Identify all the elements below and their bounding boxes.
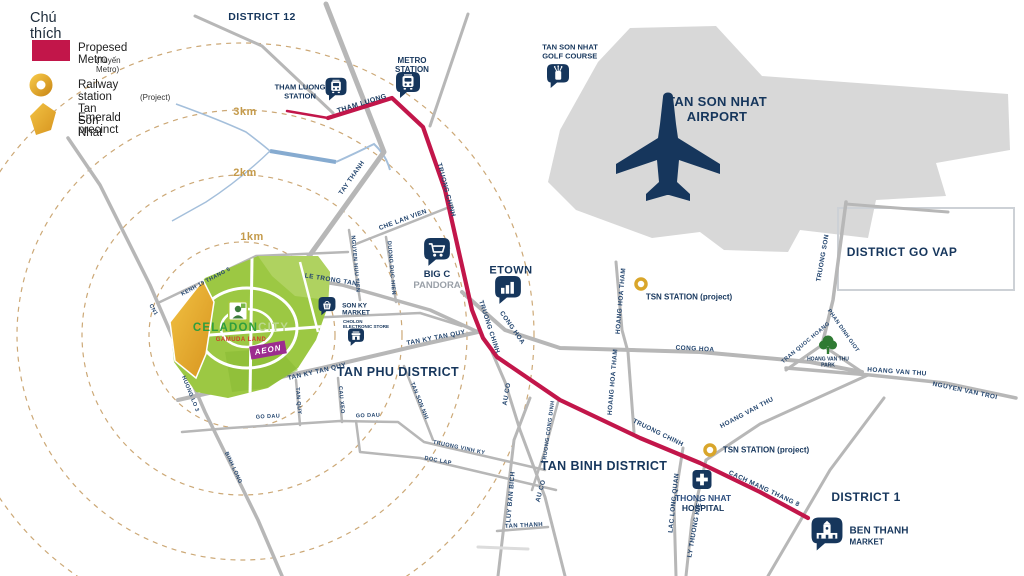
tsn-station-1-label: TSN STATION (project) [646, 292, 732, 301]
project-location-map: Chú thích Propesed Metro (Tuyến Metro) R… [0, 0, 1024, 576]
legend-title: Chú thích [30, 10, 61, 42]
etown-icon [495, 276, 521, 310]
hospital-icon [693, 470, 712, 494]
tsn-station-2-label: TSN STATION (project) [723, 445, 809, 454]
hvt-park-label: HOANG VAN THU PARK [807, 357, 849, 369]
celadon-city-label: CELADONCITY [193, 322, 289, 334]
son-ky-market-icon [319, 297, 336, 321]
tsn-station-1-marker [636, 279, 646, 289]
road-label-go-dau-1: GO DAU [256, 413, 281, 420]
tham-luong-station-label: THAM LUONG STATION [275, 83, 326, 100]
emerald-precinct-icon [30, 103, 58, 141]
metro-station-icon [396, 72, 420, 104]
airport-area [548, 26, 1010, 252]
ring-1km-label: 1km [240, 231, 264, 243]
district-12-label: DISTRICT 12 [228, 11, 295, 23]
cholon-store-icon [348, 329, 364, 352]
ring-3km-label: 3km [233, 106, 257, 118]
hospital-label: THONG NHAT HOSPITAL [675, 494, 731, 514]
tham-luong-station-icon [326, 78, 347, 107]
tan-phu-district-label: TAN PHU DISTRICT [337, 365, 459, 379]
airport-label: TAN SON NHAT AIRPORT [667, 95, 767, 125]
golf-course-icon [547, 64, 569, 94]
cholon-store-label: CHOLON ELECTRONIC STORE [343, 319, 389, 329]
road-label-go-dau-2: GO DAU [356, 413, 381, 420]
big-c-pandora-icon [424, 238, 450, 272]
metro-station-label: METRO STATION [395, 56, 429, 74]
big-c-pandora-label: BIG C PANDORA [413, 270, 460, 292]
railway-station-donut-icon [28, 72, 54, 103]
ben-thanh-market-label: BEN THANH MARKET [850, 526, 909, 547]
etown-label: ETOWN [489, 265, 532, 278]
district-1-label: DISTRICT 1 [831, 490, 900, 504]
golf-course-label: TAN SON NHAT GOLF COURSE [542, 43, 598, 60]
district-go-vap-label: DISTRICT GO VAP [847, 245, 957, 259]
ben-thanh-market-icon [811, 518, 843, 557]
park-tree-icon [819, 336, 837, 355]
legend-item-emerald: Emerald precinct [78, 112, 121, 136]
tsn-station-2-marker [705, 445, 715, 455]
gamuda-land-label: GAMUDA LAND [216, 337, 267, 343]
tan-binh-district-label: TAN BINH DISTRICT [541, 459, 668, 473]
legend-item-railway-sub: (Project) [140, 93, 170, 102]
ring-2km-label: 2km [233, 167, 257, 179]
metro-line-swatch-icon [32, 40, 70, 61]
son-ky-market-label: SON KY MARKET [342, 303, 370, 318]
legend-item-metro-sub: (Tuyến Metro) [96, 56, 121, 74]
